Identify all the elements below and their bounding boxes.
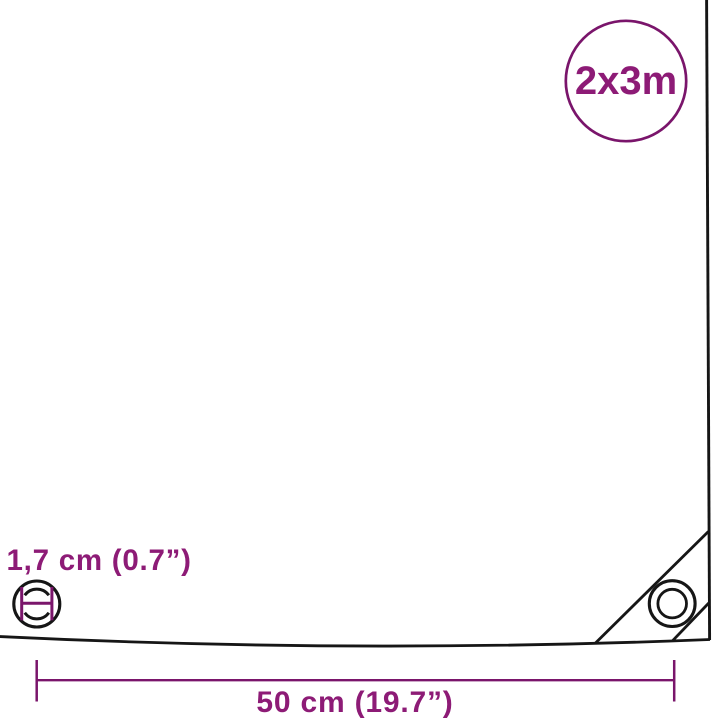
svg-text:2x3m: 2x3m xyxy=(575,59,677,103)
svg-text:1,7 cm (0.7”): 1,7 cm (0.7”) xyxy=(7,544,192,577)
svg-text:50 cm (19.7”): 50 cm (19.7”) xyxy=(256,686,453,719)
